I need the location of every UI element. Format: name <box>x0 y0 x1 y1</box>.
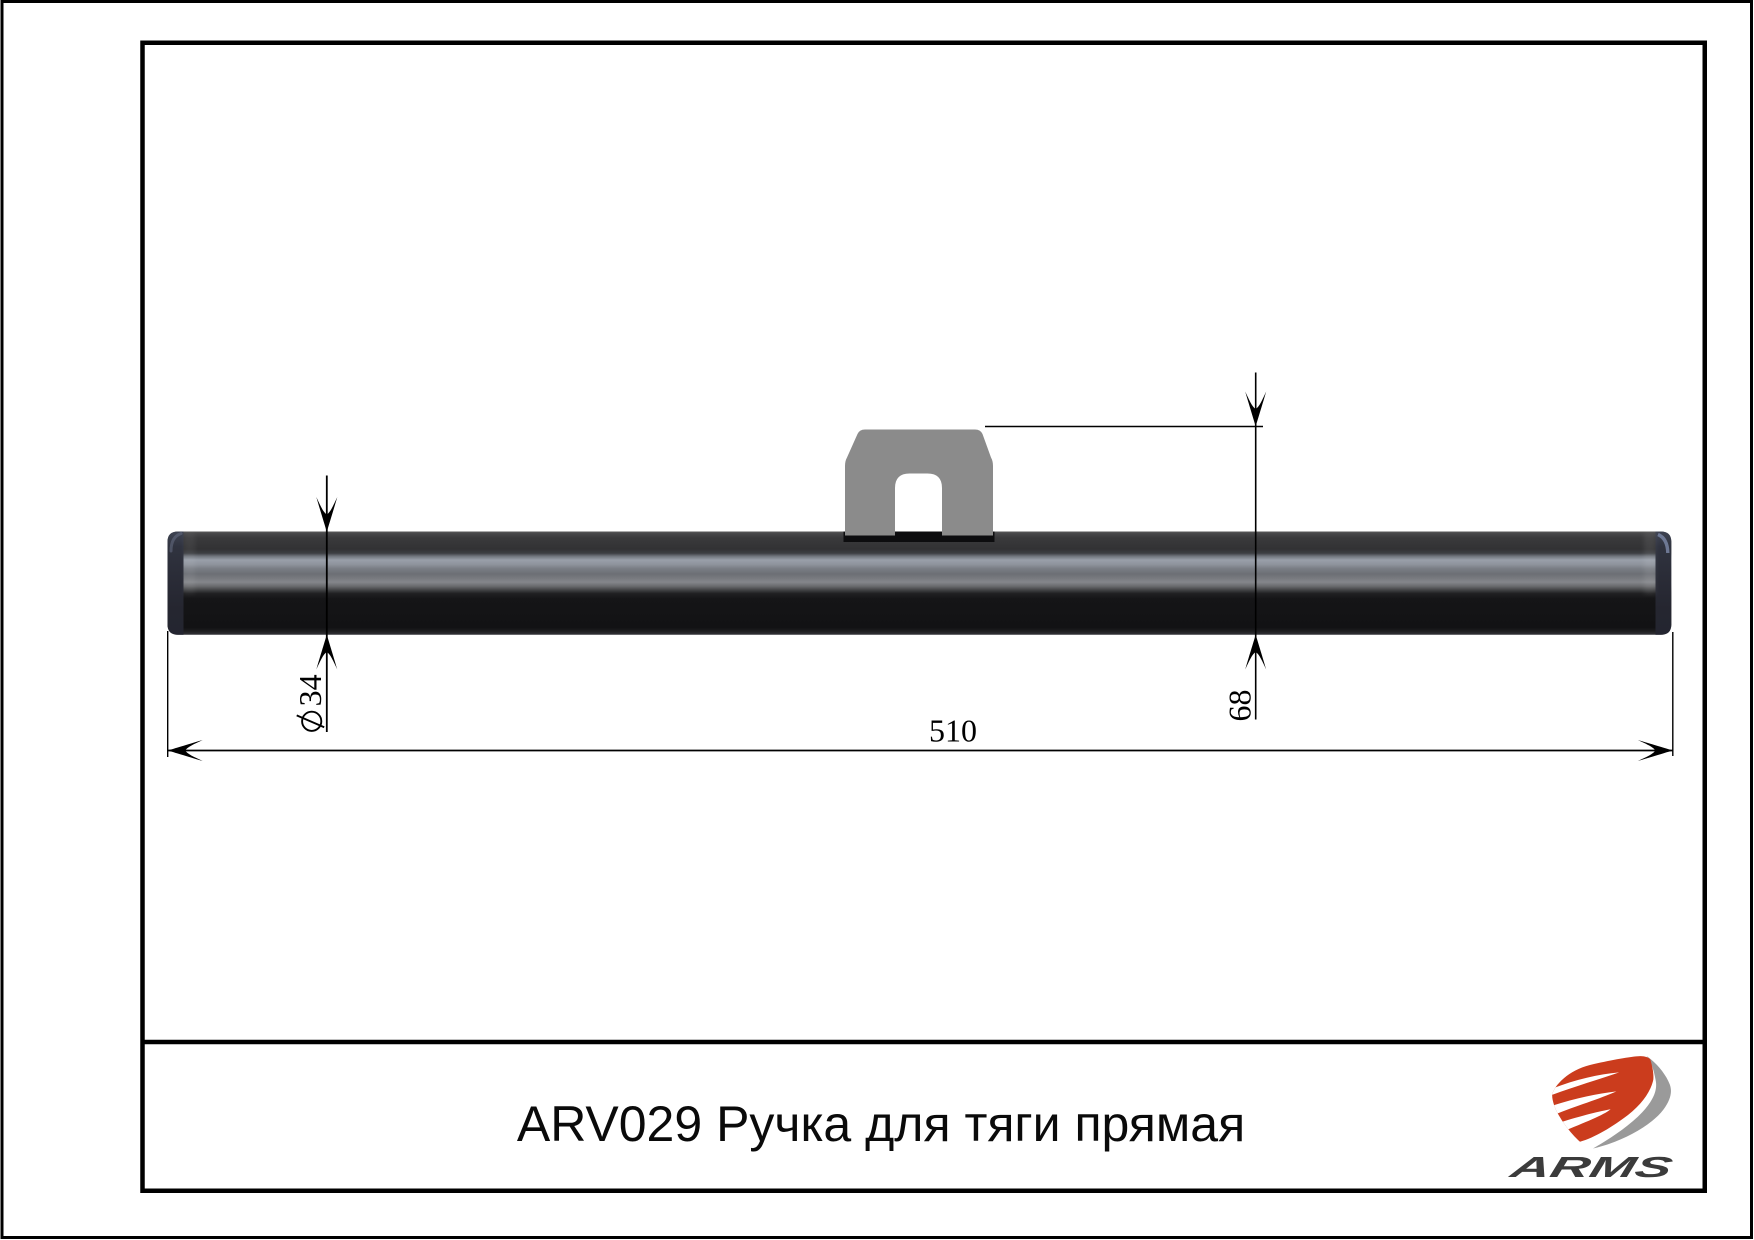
svg-text:ARV029 Ручка для тяги прямая: ARV029 Ручка для тяги прямая <box>517 1096 1245 1152</box>
svg-text:ARMS: ARMS <box>1506 1151 1676 1183</box>
svg-text:34: 34 <box>292 674 328 706</box>
svg-text:510: 510 <box>929 713 977 749</box>
svg-text:68: 68 <box>1222 690 1258 722</box>
